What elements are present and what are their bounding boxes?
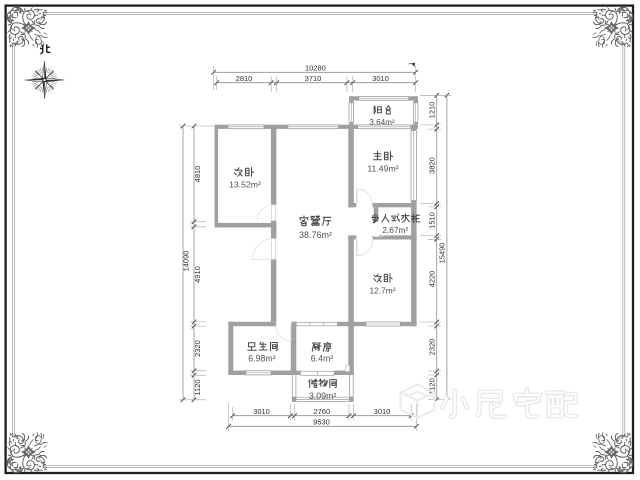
svg-text:15490: 15490 — [438, 243, 447, 264]
svg-text:1510: 1510 — [427, 212, 436, 229]
svg-text:1210: 1210 — [427, 102, 436, 119]
svg-text:6.98m²: 6.98m² — [248, 354, 275, 364]
svg-text:12.7m²: 12.7m² — [369, 285, 395, 295]
svg-text:38.76m²: 38.76m² — [299, 230, 332, 240]
svg-text:3.09m²: 3.09m² — [309, 391, 336, 401]
svg-text:11.49m²: 11.49m² — [367, 164, 398, 174]
svg-text:1120: 1120 — [193, 379, 202, 395]
svg-text:3820: 3820 — [427, 157, 436, 174]
svg-text:3710: 3710 — [305, 74, 322, 83]
svg-text:4910: 4910 — [193, 266, 202, 283]
svg-text:4810: 4810 — [193, 166, 202, 183]
svg-text:9530: 9530 — [313, 418, 330, 427]
svg-text:2320: 2320 — [193, 340, 202, 357]
svg-text:2.67m²: 2.67m² — [382, 225, 408, 235]
svg-text:6.4m²: 6.4m² — [311, 354, 334, 364]
svg-text:2320: 2320 — [427, 339, 436, 356]
svg-text:4220: 4220 — [427, 271, 436, 288]
svg-text:2760: 2760 — [313, 407, 330, 416]
svg-text:13.52m²: 13.52m² — [229, 180, 261, 190]
svg-text:3010: 3010 — [253, 407, 270, 416]
svg-text:2810: 2810 — [236, 74, 253, 83]
svg-text:14090: 14090 — [181, 251, 190, 272]
svg-text:3010: 3010 — [374, 407, 391, 416]
svg-text:3010: 3010 — [372, 74, 389, 83]
svg-text:3.64m²: 3.64m² — [369, 118, 395, 127]
svg-text:10280: 10280 — [305, 64, 326, 73]
